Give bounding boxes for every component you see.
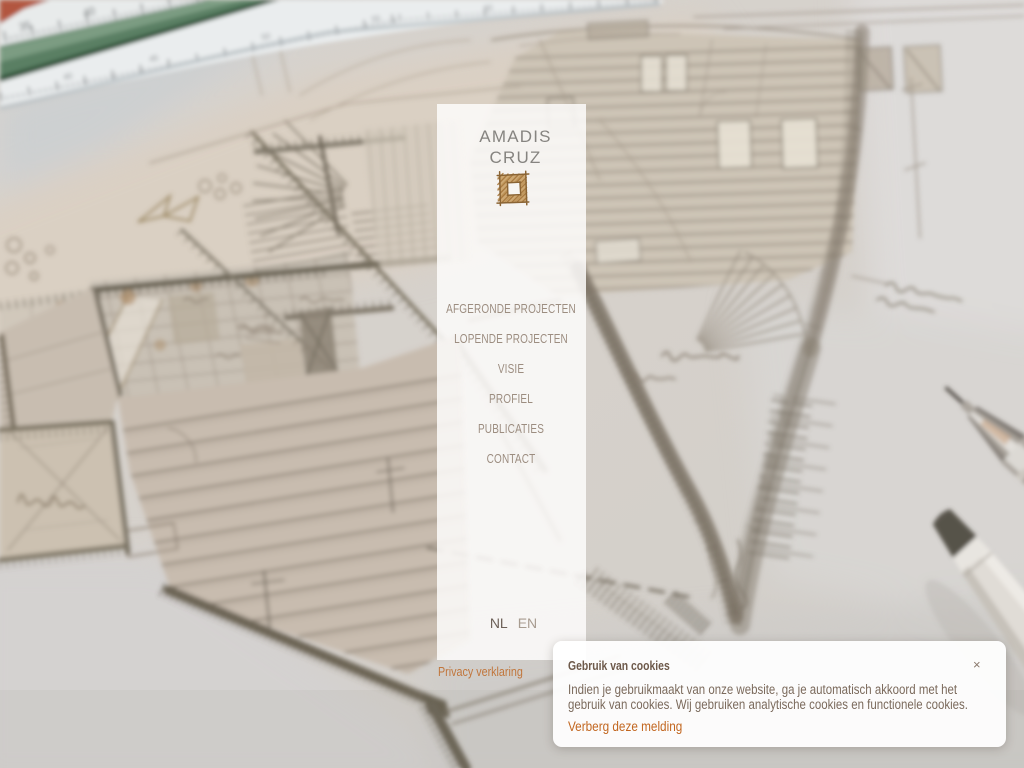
svg-text:60: 60 <box>483 3 493 13</box>
